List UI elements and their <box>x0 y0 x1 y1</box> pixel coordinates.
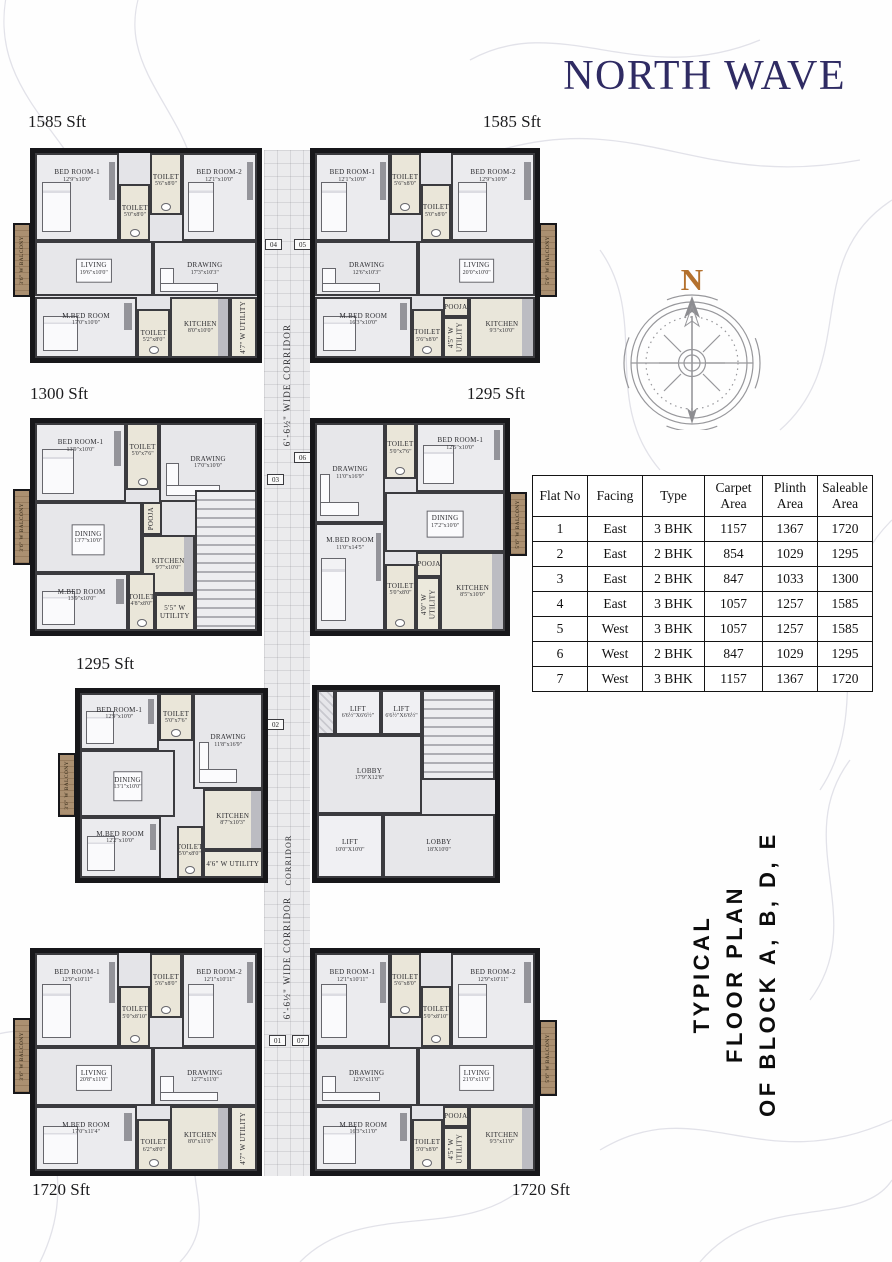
room-dimension: 5'6"x8'0" <box>155 981 177 988</box>
lobby-room: LOBBY17'9"X12'8" <box>317 735 422 814</box>
unit-6-bottom-left-1720: BED ROOM-112'9"x10'11"TOILET5'0"x8'10"TO… <box>30 948 262 1176</box>
toilet-room: TOILET5'0"x8'0" <box>412 1119 443 1171</box>
room-dimension: 8'7"x10'3" <box>220 820 245 827</box>
balcony-left: 3'6" W BALCONY <box>58 753 76 817</box>
bed-room-1-room: BED ROOM-112'1"x10'0" <box>315 153 390 241</box>
4-5-w-utility-room: 4'5" W UTILITY <box>443 317 469 358</box>
room-dimension: 6'6½"X6'6½" <box>342 713 374 720</box>
room-dimension: 13'9"x10'0" <box>68 596 96 603</box>
room-label: DRAWING <box>190 455 225 463</box>
caption-line-2: FLOOR PLAN <box>718 804 751 1144</box>
unit-4-mid-right-1295: DRAWING11'0"x16'9"TOILET5'0"x7'6"BED ROO… <box>310 418 510 636</box>
room-dimension: 5'2"x8'0" <box>143 337 165 344</box>
table-cell: 1585 <box>818 617 873 642</box>
room-dimension: 6'2"x8'0" <box>143 1147 165 1154</box>
dining-room: DINING13'1"x10'0" <box>80 750 175 817</box>
room-label: M.BED ROOM <box>62 1121 110 1129</box>
table-cell: 3 <box>533 567 588 592</box>
room-dimension: 5'0"x8'10" <box>423 1014 448 1021</box>
bed-room-1-room: BED ROOM-112'9"x10'11" <box>35 953 119 1047</box>
table-cell: 1057 <box>705 592 763 617</box>
table-cell: 1057 <box>705 617 763 642</box>
table-cell: 1033 <box>763 567 818 592</box>
room-dimension: 5'6"x8'0" <box>155 181 177 188</box>
kitchen-room: KITCHEN8'7"x10'3" <box>203 789 263 850</box>
kitchen-room: KITCHEN8'0"x11'0" <box>170 1106 230 1171</box>
m-bed-room-room: M.BED ROOM11'0"x14'5" <box>315 523 385 631</box>
room-dimension: 12'1"x10'0" <box>205 177 233 184</box>
unit-5-lower-left-1295: BED ROOM-112'9"x10'0"TOILET5'0"x7'6"DRAW… <box>75 688 268 883</box>
flat-number-tag: 04 <box>265 239 282 250</box>
table-cell: 3 BHK <box>643 667 705 692</box>
5-5-w-utility-room: 5'5" W UTILITY <box>155 594 195 631</box>
table-cell: 1367 <box>763 517 818 542</box>
balcony-label: 3'6" W BALCONY <box>19 1032 25 1081</box>
room-dimension: 21'0"x11'0" <box>463 1077 491 1084</box>
room-label: BED ROOM-1 <box>54 168 100 176</box>
dining-room: DINING13'7"x10'0" <box>35 502 142 573</box>
room-dimension: 17'3"x10'3" <box>191 270 219 277</box>
table-cell: 6 <box>533 642 588 667</box>
4-7-w-utility-room: 4'7" W UTILITY <box>230 297 257 359</box>
toilet-room: TOILET5'0"x8'0" <box>119 184 150 241</box>
balcony-right: 5'6" W BALCONY <box>539 1020 557 1096</box>
caption-line-3: OF BLOCK A, B, D, E <box>751 804 784 1144</box>
toilet-room: TOILET5'0"x8'10" <box>119 986 150 1047</box>
room-label: TOILET <box>177 843 203 851</box>
table-cell: East <box>588 592 643 617</box>
room-label: BED ROOM-2 <box>196 968 242 976</box>
table-row: 5West3 BHK105712571585 <box>533 617 873 642</box>
room-label: TOILET <box>153 173 179 181</box>
table-header-plinth-area: Plinth Area <box>763 476 818 517</box>
room-label: KITCHEN <box>152 557 185 565</box>
balcony-left: 3'6" W BALCONY <box>13 223 31 297</box>
room-label: TOILET <box>141 329 167 337</box>
room-label: KITCHEN <box>216 812 249 820</box>
room-label: BED ROOM-1 <box>54 968 100 976</box>
pooja-room: POOJA <box>142 502 162 535</box>
room-label: TOILET <box>141 1138 167 1146</box>
room-label: TOILET <box>423 1005 449 1013</box>
room-label: 5'5" W UTILITY <box>157 604 193 621</box>
table-cell: 1 <box>533 517 588 542</box>
room-label: DRAWING <box>332 465 367 473</box>
drawing-room: DRAWING12'6"x11'0" <box>315 1047 418 1106</box>
room-dimension: 12'6"x10'3" <box>353 270 381 277</box>
room-label: TOILET <box>122 204 148 212</box>
room-label: TOILET <box>414 1138 440 1146</box>
table-cell: 1029 <box>763 542 818 567</box>
table-row: 7West3 BHK115713671720 <box>533 667 873 692</box>
balcony-label: 5'6" W BALCONY <box>515 500 521 549</box>
flat-details-table: Flat NoFacingTypeCarpet AreaPlinth AreaS… <box>532 475 873 692</box>
lift-room: LIFT6'6½"X6'6½" <box>381 690 422 735</box>
unit-area-label: 1295 Sft <box>467 384 525 404</box>
room-dimension: 12'9"x10'0" <box>105 714 133 721</box>
room-dimension: 13'9"x10'0" <box>66 447 94 454</box>
table-cell: 5 <box>533 617 588 642</box>
room-label: KITCHEN <box>456 584 489 592</box>
flat-table-body: 1East3 BHK1157136717202East2 BHK85410291… <box>533 517 873 692</box>
table-cell: 7 <box>533 667 588 692</box>
drawing-room: DRAWING12'6"x10'3" <box>315 241 418 296</box>
room-label: TOILET <box>153 973 179 981</box>
table-cell: 2 BHK <box>643 567 705 592</box>
room-label: DINING <box>75 530 102 538</box>
room-dimension: 5'0"x7'6" <box>165 718 187 725</box>
table-cell: 1157 <box>705 667 763 692</box>
drawing-room: DRAWING12'7"x11'0" <box>153 1047 257 1106</box>
room-label: LIVING <box>464 1069 490 1077</box>
table-row: 6West2 BHK84710291295 <box>533 642 873 667</box>
room-label: POOJA <box>444 303 467 311</box>
room-label: M.BED ROOM <box>340 312 388 320</box>
living-room: LIVING20'8"x11'0" <box>35 1047 153 1106</box>
toilet-room: TOILET5'6"x8'0" <box>150 153 181 215</box>
balcony-right: 5'6" W BALCONY <box>509 492 527 556</box>
table-cell: 2 <box>533 542 588 567</box>
table-cell: East <box>588 517 643 542</box>
room-dimension: 5'6"x8'0" <box>394 181 416 188</box>
4-5-w-utility-room: 4'5" W UTILITY <box>443 1127 469 1171</box>
table-cell: 1720 <box>818 517 873 542</box>
table-header-carpet-area: Carpet Area <box>705 476 763 517</box>
room-label: 4'5" W UTILITY <box>447 319 464 356</box>
table-cell: 4 <box>533 592 588 617</box>
balcony-left: 3'6" W BALCONY <box>13 1018 31 1094</box>
table-cell: 3 BHK <box>643 617 705 642</box>
room-label: KITCHEN <box>184 320 217 328</box>
4-0-w-utility-room: 4'0" W UTILITY <box>416 577 441 631</box>
room-label: DRAWING <box>211 733 246 741</box>
flat-number-tag: 01 <box>269 1035 286 1046</box>
unit-3-mid-left-1300: BED ROOM-113'9"x10'0"TOILET5'0"x7'6"DRAW… <box>30 418 262 636</box>
room-dimension: 12'7"x11'0" <box>191 1077 219 1084</box>
room-label: POOJA <box>147 507 155 530</box>
table-header-facing: Facing <box>588 476 643 517</box>
table-cell: 1585 <box>818 592 873 617</box>
room-dimension: 17'2"x10'0" <box>431 523 459 530</box>
table-cell: West <box>588 642 643 667</box>
balcony-label: 3'6" W BALCONY <box>64 761 70 810</box>
unit-2-top-right-1585: BED ROOM-112'1"x10'0"TOILET5'6"x8'0"TOIL… <box>310 148 540 363</box>
room-dimension: 18'X10'0" <box>427 847 451 854</box>
room-dimension: 5'0"x8'0" <box>389 590 411 597</box>
flat-table-header: Flat NoFacingTypeCarpet AreaPlinth AreaS… <box>533 476 873 517</box>
room-dimension: 13'1"x10'0" <box>114 784 142 791</box>
caption-line-1: TYPICAL <box>685 804 718 1144</box>
room-dimension: 5'6"x8'0" <box>416 337 438 344</box>
table-cell: 854 <box>705 542 763 567</box>
room-label: DRAWING <box>349 261 384 269</box>
m-bed-room-room: M.BED ROOM13'9"x10'0" <box>35 573 128 631</box>
unit-area-label: 1295 Sft <box>76 654 134 674</box>
bed-room-1-room: BED ROOM-112'1"x10'11" <box>315 953 390 1047</box>
room-dimension: 19'6"x10'0" <box>80 270 108 277</box>
flat-number-tag: 05 <box>294 239 311 250</box>
toilet-room: TOILET5'6"x8'0" <box>412 309 443 358</box>
room-label: TOILET <box>387 582 413 590</box>
room-label: LIVING <box>81 261 107 269</box>
room-label: TOILET <box>414 328 440 336</box>
toilet-room: TOILET5'0"x8'0" <box>177 826 203 878</box>
table-cell: 847 <box>705 567 763 592</box>
lobby-room: LOBBY18'X10'0" <box>383 814 495 878</box>
balcony-left: 3'6" W BALCONY <box>13 489 31 565</box>
m-bed-room-room: M.BED ROOM17'0"x11'4" <box>35 1106 137 1171</box>
4-6-w-utility-room: 4'6" W UTILITY <box>203 850 263 878</box>
room-label: TOILET <box>387 440 413 448</box>
toilet-room: TOILET5'0"x7'6" <box>159 693 194 741</box>
living-room: LIVING21'0"x11'0" <box>418 1047 535 1106</box>
room-dimension: 11'0"x16'9" <box>336 474 364 481</box>
room-dimension: 9'7"x10'0" <box>156 565 181 572</box>
flat-number-tag: 06 <box>294 452 311 463</box>
balcony-label: 5'6" W BALCONY <box>545 236 551 285</box>
room-label: BED ROOM-1 <box>330 968 376 976</box>
room-dimension: 17'9"X12'8" <box>355 775 384 782</box>
drawing-room: DRAWING17'3"x10'3" <box>153 241 257 296</box>
room-label: 4'7" W UTILITY <box>239 1112 247 1165</box>
living-room: LIVING20'0"x10'0" <box>418 241 535 296</box>
table-cell: 1257 <box>763 592 818 617</box>
room-label: TOILET <box>128 593 154 601</box>
room-label: 4'5" W UTILITY <box>447 1129 464 1169</box>
m-bed-room-room: M.BED ROOM17'0"x10'0" <box>35 297 137 359</box>
room-dimension: 17'0"x11'4" <box>72 1129 100 1136</box>
room-dimension: 8'0"x10'0" <box>188 328 213 335</box>
bed-room-1-room: BED ROOM-113'9"x10'0" <box>35 423 126 502</box>
unit-1-top-left-1585: BED ROOM-112'9"x10'0"TOILET5'0"x8'0"TOIL… <box>30 148 262 363</box>
m-bed-room-room: M.BED ROOM12'2"x10'0" <box>80 817 161 878</box>
toilet-room: TOILET5'2"x8'0" <box>137 309 170 358</box>
table-cell: East <box>588 542 643 567</box>
room-label: BED ROOM-1 <box>330 168 376 176</box>
table-cell: 1157 <box>705 517 763 542</box>
room-dimension: 5'0"x7'6" <box>132 451 154 458</box>
room-dimension: 5'0"x8'10" <box>122 1014 147 1021</box>
toilet-room: TOILET5'0"x7'6" <box>126 423 159 490</box>
balcony-label: 5'6" W BALCONY <box>545 1034 551 1083</box>
table-header-saleable-area: Saleable Area <box>818 476 873 517</box>
flat-number-tag: 03 <box>267 474 284 485</box>
flat-number-tag: 07 <box>292 1035 309 1046</box>
toilet-room: TOILET5'6"x8'0" <box>390 153 421 215</box>
table-cell: 1295 <box>818 542 873 567</box>
room-label: KITCHEN <box>486 1131 519 1139</box>
bed-room-2-room: BED ROOM-212'1"x10'11" <box>182 953 257 1047</box>
room-dimension: 12'5"x10'0" <box>446 445 474 452</box>
room-dimension: 9'3"x10'0" <box>489 328 514 335</box>
room-label: KITCHEN <box>184 1131 217 1139</box>
room-dimension: 12'2"x10'0" <box>106 838 134 845</box>
unit-area-label: 1300 Sft <box>30 384 88 404</box>
lift-room: LIFT6'6½"X6'6½" <box>335 690 381 735</box>
room-label: BED ROOM-1 <box>97 706 143 714</box>
table-cell: West <box>588 617 643 642</box>
table-cell: 1295 <box>818 642 873 667</box>
bed-room-1-room: BED ROOM-112'5"x10'0" <box>416 423 505 492</box>
toilet-room: TOILET5'0"x8'0" <box>421 184 452 241</box>
room-dimension: 12'1"x10'0" <box>338 177 366 184</box>
toilet-room: TOILET5'0"x8'0" <box>385 564 415 631</box>
toilet-room: TOILET5'6"x8'0" <box>390 953 421 1018</box>
table-row: 4East3 BHK105712571585 <box>533 592 873 617</box>
room-label: TOILET <box>392 173 418 181</box>
room-label: M.BED ROOM <box>62 312 110 320</box>
4-7-w-utility-room: 4'7" W UTILITY <box>230 1106 257 1171</box>
room-label: LIVING <box>81 1069 107 1077</box>
table-cell: 1257 <box>763 617 818 642</box>
toilet-room: TOILET4'8"x8'0" <box>128 573 155 631</box>
room-dimension: 5'0"x8'0" <box>124 212 146 219</box>
pooja-room: POOJA <box>416 552 443 577</box>
bed-room-1-room: BED ROOM-112'9"x10'0" <box>80 693 159 750</box>
stairs-room <box>422 690 495 780</box>
toilet-room: TOILET5'6"x8'0" <box>150 953 181 1018</box>
room-label: POOJA <box>417 560 440 568</box>
room-dimension: 17'0"x10'0" <box>194 463 222 470</box>
stairs-room <box>195 490 257 631</box>
table-cell: 847 <box>705 642 763 667</box>
room-label: LOBBY <box>426 838 451 846</box>
table-cell: 1720 <box>818 667 873 692</box>
room-label: M.BED ROOM <box>326 536 374 544</box>
table-cell: West <box>588 667 643 692</box>
pooja-room: POOJA <box>443 297 469 318</box>
room-label: LIFT <box>342 838 358 846</box>
table-header-flat-no: Flat No <box>533 476 588 517</box>
unit-area-label: 1720 Sft <box>512 1180 570 1200</box>
flat-number-tag: 02 <box>267 719 284 730</box>
table-cell: 2 BHK <box>643 642 705 667</box>
room-dimension: 5'6"x8'0" <box>394 981 416 988</box>
room-label: M.BED ROOM <box>58 588 106 596</box>
table-cell: 1367 <box>763 667 818 692</box>
room-dimension: 12'9"x10'0" <box>63 177 91 184</box>
corridor-label: 6'-6½" WIDE CORRIDOR <box>279 270 295 500</box>
table-cell: 1029 <box>763 642 818 667</box>
room-label: TOILET <box>130 443 156 451</box>
dining-room: DINING17'2"x10'0" <box>385 492 505 552</box>
room-dimension: 8'5"x10'0" <box>460 592 485 599</box>
room-label: DINING <box>114 776 141 784</box>
table-cell: East <box>588 567 643 592</box>
toilet-room: TOILET6'2"x8'0" <box>137 1119 170 1171</box>
room-dimension: 12'6"x11'0" <box>353 1077 381 1084</box>
bed-room-2-room: BED ROOM-212'9"x10'11" <box>451 953 535 1047</box>
table-cell: 3 BHK <box>643 517 705 542</box>
room-label: BED ROOM-2 <box>470 968 516 976</box>
table-cell: 3 BHK <box>643 592 705 617</box>
drawing-room: DRAWING11'0"x16'9" <box>315 423 385 523</box>
room-dimension: 8'0"x11'0" <box>188 1139 213 1146</box>
room-dimension: 20'8"x11'0" <box>80 1077 108 1084</box>
kitchen-room: KITCHEN8'5"x10'0" <box>440 552 505 631</box>
room-label: LIVING <box>464 261 490 269</box>
unit-7-bottom-right-1720: BED ROOM-112'1"x10'11"TOILET5'6"x8'0"TOI… <box>310 948 540 1176</box>
table-row: 3East2 BHK84710331300 <box>533 567 873 592</box>
room-dimension: 11'0"x14'5" <box>336 545 364 552</box>
room-label: 4'7" W UTILITY <box>239 301 247 354</box>
room-dimension: 11'8"x16'9" <box>214 742 242 749</box>
shaft-room <box>317 690 335 735</box>
lift-room: LIFT10'0"X10'0" <box>317 814 383 878</box>
floor-plan-page: NORTH WAVE N 6'-6½" WIDE CORRIDOR6'-6½" … <box>0 0 892 1262</box>
room-dimension: 12'9"x10'11" <box>62 977 93 984</box>
room-label: POOJA <box>444 1112 467 1120</box>
room-label: BED ROOM-2 <box>470 168 516 176</box>
room-label: BED ROOM-1 <box>438 436 484 444</box>
room-label: 4'0" W UTILITY <box>420 579 437 629</box>
kitchen-room: KITCHEN9'3"x10'0" <box>469 297 535 359</box>
unit-area-label: 1585 Sft <box>28 112 86 132</box>
room-label: BED ROOM-2 <box>196 168 242 176</box>
room-label: TOILET <box>122 1005 148 1013</box>
room-dimension: 12'1"x10'11" <box>337 977 368 984</box>
table-cell: 1300 <box>818 567 873 592</box>
corridor-label: CORRIDOR <box>280 820 296 900</box>
table-row: 1East3 BHK115713671720 <box>533 517 873 542</box>
room-label: DRAWING <box>349 1069 384 1077</box>
balcony-right: 5'6" W BALCONY <box>539 223 557 297</box>
room-label: DRAWING <box>187 261 222 269</box>
room-dimension: 17'0"x10'0" <box>72 320 100 327</box>
room-dimension: 16'3"x10'0" <box>349 320 377 327</box>
room-label: DRAWING <box>187 1069 222 1077</box>
caption-typical-floor-plan: TYPICAL FLOOR PLAN OF BLOCK A, B, D, E <box>685 804 785 1144</box>
unit-area-label: 1720 Sft <box>32 1180 90 1200</box>
kitchen-room: KITCHEN8'0"x10'0" <box>170 297 230 359</box>
room-label: DINING <box>432 514 459 522</box>
unit-area-label: 1585 Sft <box>483 112 541 132</box>
room-label: KITCHEN <box>486 320 519 328</box>
room-dimension: 6'6½"X6'6½" <box>385 713 417 720</box>
room-dimension: 20'0"x10'0" <box>463 270 491 277</box>
room-dimension: 5'0"x8'0" <box>425 212 447 219</box>
table-cell: 2 BHK <box>643 542 705 567</box>
room-label: BED ROOM-1 <box>58 438 104 446</box>
drawing-room: DRAWING11'8"x16'9" <box>193 693 263 789</box>
room-dimension: 5'0"x7'6" <box>389 449 411 456</box>
room-label: TOILET <box>392 973 418 981</box>
bed-room-2-room: BED ROOM-212'1"x10'0" <box>182 153 257 241</box>
room-label: TOILET <box>423 203 449 211</box>
table-row: 2East2 BHK85410291295 <box>533 542 873 567</box>
room-dimension: 13'7"x10'0" <box>74 538 102 545</box>
room-dimension: 12'1"x10'11" <box>204 977 235 984</box>
room-dimension: 16'3"x11'0" <box>349 1129 377 1136</box>
room-dimension: 4'8"x8'0" <box>131 601 153 608</box>
pooja-room: POOJA <box>443 1106 469 1128</box>
toilet-room: TOILET5'0"x7'6" <box>385 423 415 479</box>
central-core: LIFT6'6½"X6'6½"LIFT6'6½"X6'6½"LOBBY17'9"… <box>312 685 500 883</box>
room-dimension: 5'0"x8'0" <box>416 1147 438 1154</box>
table-header-type: Type <box>643 476 705 517</box>
m-bed-room-room: M.BED ROOM16'3"x11'0" <box>315 1106 412 1171</box>
room-dimension: 12'9"x10'0" <box>479 177 507 184</box>
room-label: M.BED ROOM <box>96 830 144 838</box>
room-label: TOILET <box>163 710 189 718</box>
room-dimension: 9'3"x11'0" <box>490 1139 515 1146</box>
m-bed-room-room: M.BED ROOM16'3"x10'0" <box>315 297 412 359</box>
bed-room-2-room: BED ROOM-212'9"x10'0" <box>451 153 535 241</box>
room-label: M.BED ROOM <box>340 1121 388 1129</box>
balcony-label: 3'6" W BALCONY <box>19 236 25 285</box>
toilet-room: TOILET5'0"x8'10" <box>421 986 452 1047</box>
balcony-label: 3'6" W BALCONY <box>19 503 25 552</box>
